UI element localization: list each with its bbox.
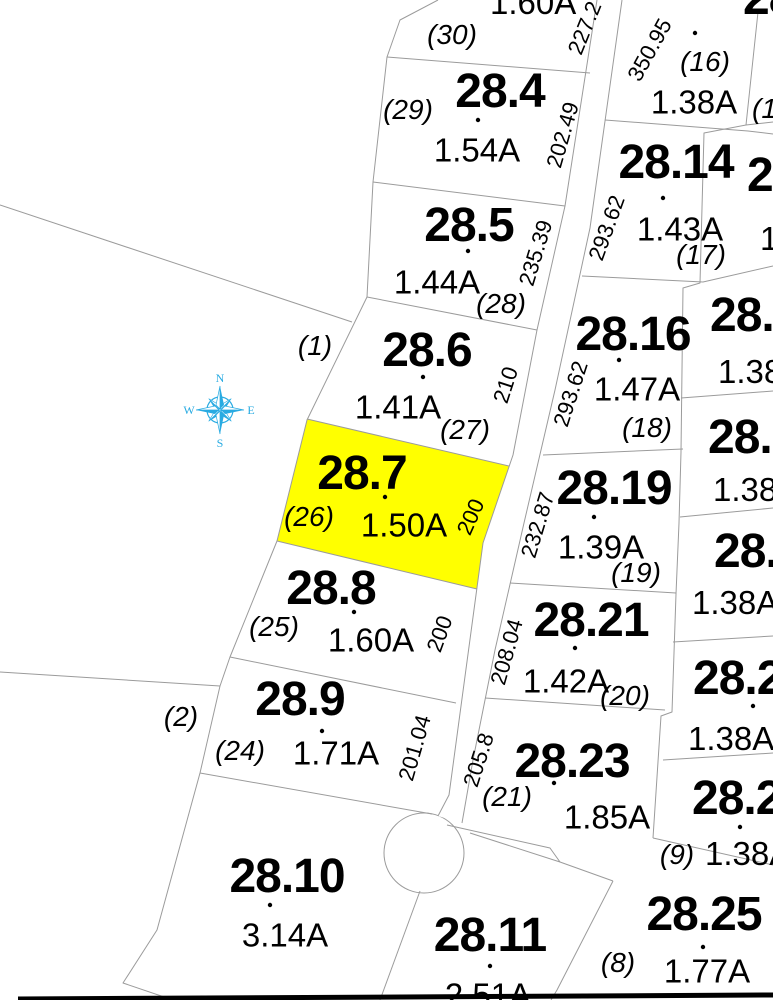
edge-parcel-6-number: 28.2 xyxy=(692,775,773,823)
road-corridor xyxy=(438,0,622,823)
parcel-28-6-acreage: 1.41A xyxy=(355,391,441,424)
parcel-28-9-number: 28.9 xyxy=(255,676,344,724)
parcel-28-4-lot: (29) xyxy=(383,96,433,124)
parcel-28-19-number: 28.19 xyxy=(556,465,671,513)
edge-parcel-5-number: 28.2 xyxy=(693,655,773,703)
edge-parcel-4-acreage: 1.38A xyxy=(692,586,773,619)
tract-1-line xyxy=(0,205,352,322)
parcel-28-4-number: 28.4 xyxy=(455,68,544,116)
parcel-16-acreage: 1.38A xyxy=(651,86,737,119)
edge-parcel-1-acreage: 1 xyxy=(760,222,773,255)
parcel-28-14-number: 28.14 xyxy=(618,139,733,187)
parcel-28-14-lot: (17) xyxy=(676,241,726,269)
parcel-28-7-lot: (26) xyxy=(284,503,334,531)
tract-2-line xyxy=(0,672,220,686)
edge-parcel-5-acreage: 1.38A xyxy=(688,722,773,755)
parcel-28-5-number: 28.5 xyxy=(424,202,513,250)
parcel-28-8-number: 28.8 xyxy=(286,565,375,613)
parcel-28-11-acreage: 2.51A xyxy=(445,979,531,1000)
compass-letter-n: N xyxy=(216,371,225,385)
edge-parcel-4-number: 28. xyxy=(714,528,773,576)
parcel-28-25-acreage: 1.77A xyxy=(664,955,750,988)
parcel-28-8-acreage: 1.60A xyxy=(328,624,414,657)
parcel-28-16-acreage: 1.47A xyxy=(594,373,680,406)
out-lot-2: (2) xyxy=(164,703,198,731)
compass-letter-e: E xyxy=(247,403,254,417)
parcel-28-16-number: 28.16 xyxy=(575,311,690,359)
compass-letter-w: W xyxy=(183,403,195,417)
edge-parcel-3-number: 28. xyxy=(708,414,772,462)
compass-rose: N E S W xyxy=(183,371,254,450)
edge-parcel-1-number: 2 xyxy=(747,152,773,200)
parcel-28-10-acreage: 3.14A xyxy=(242,919,328,952)
parcel-16-lot: (16) xyxy=(680,48,730,76)
culdesac-circle xyxy=(384,813,464,893)
edge-parcel-3-acreage: 1.38A xyxy=(713,473,773,506)
parcel-28-6-lot: (27) xyxy=(440,416,490,444)
plat-map: N E S W 1.60A (30) 28.4 1.54A (29) 28.5 … xyxy=(0,0,773,1000)
parcel-28-21-number: 28.21 xyxy=(533,597,648,645)
compass-cardinal-points xyxy=(196,386,244,434)
bottom-border xyxy=(18,995,773,999)
parcel-30-acreage: 1.60A xyxy=(490,0,576,19)
parcel-28-16-lot: (18) xyxy=(622,414,672,442)
edge-parcel-2-number: 28. xyxy=(710,292,773,340)
parcel-28-4-acreage: 1.54A xyxy=(434,134,520,167)
parcel-28-23-acreage: 1.85A xyxy=(564,801,650,834)
parcel-28-23-number: 28.23 xyxy=(514,738,629,786)
parcel-28-5-lot: (28) xyxy=(476,290,526,318)
parcel-30-lot: (30) xyxy=(427,21,477,49)
edge-parcel-2-acreage: 1.38 xyxy=(718,355,773,388)
parcel-28-25-number: 28.25 xyxy=(646,891,761,939)
compass-letter-s: S xyxy=(217,436,224,450)
parcel-28-7-number: 28.7 xyxy=(317,450,406,498)
parcel-28-6-number: 28.6 xyxy=(382,327,471,375)
parcel-28-10-number: 28.10 xyxy=(229,853,344,901)
parcel-28-9-acreage: 1.71A xyxy=(293,737,379,770)
parcel-28-21-acreage: 1.42A xyxy=(523,665,609,698)
parcel-28-5-acreage: 1.44A xyxy=(394,266,480,299)
parcel-28-11-number: 28.11 xyxy=(434,912,546,960)
edge-parcel-lot-15: (1 xyxy=(752,95,773,123)
parcel-28-19-lot: (19) xyxy=(611,559,661,587)
out-lot-1: (1) xyxy=(298,332,332,360)
parcel-28-25-lot: (8) xyxy=(601,949,635,977)
parcel-28-9-lot: (24) xyxy=(215,737,265,765)
parcel-28-21-lot: (20) xyxy=(600,682,650,710)
edge-parcel-6-lot: (9) xyxy=(660,841,694,869)
parcel-28-7-acreage: 1.50A xyxy=(361,509,447,542)
edge-parcel-6-acreage: 1.38A xyxy=(705,837,773,870)
parcel-28-8-lot: (25) xyxy=(249,613,299,641)
parcel-28-23-lot: (21) xyxy=(482,783,532,811)
edge-parcel-28-12-number: 28.12 xyxy=(743,0,773,23)
